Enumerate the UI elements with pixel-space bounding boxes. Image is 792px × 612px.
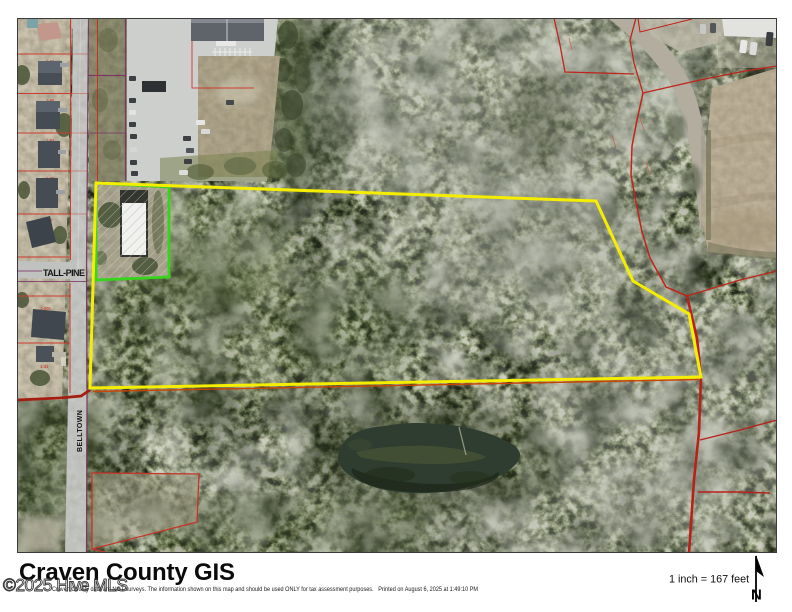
svg-text:©2025 Hive MLS: ©2025 Hive MLS	[3, 575, 128, 595]
svg-text:TALL-PINE: TALL-PINE	[43, 268, 85, 278]
svg-text:BELLTOWN: BELLTOWN	[77, 410, 84, 452]
svg-text:1 inch = 167 feet: 1 inch = 167 feet	[669, 574, 749, 586]
svg-text:1-31: 1-31	[40, 364, 49, 369]
svg-text:N: N	[751, 587, 762, 604]
